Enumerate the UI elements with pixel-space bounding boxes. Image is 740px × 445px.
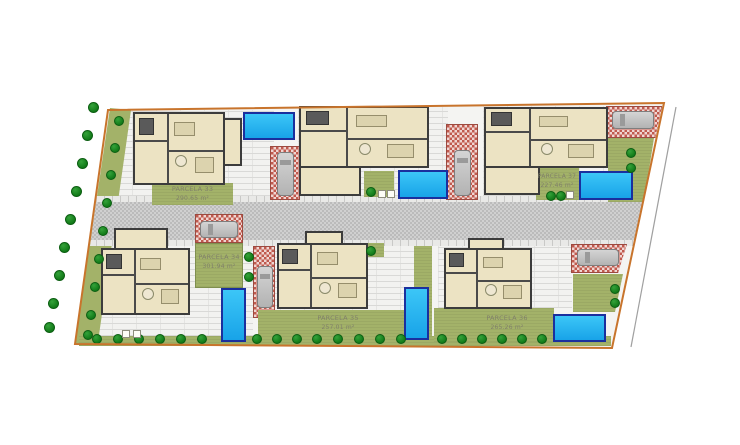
tree [88, 102, 99, 113]
interior-wall [529, 139, 606, 141]
table [319, 282, 331, 294]
interior-wall [103, 274, 134, 276]
tree [477, 334, 487, 344]
tree [98, 226, 108, 236]
tree [102, 198, 112, 208]
label-parcela-36: PARCELA 36 265.26 m² [462, 314, 552, 332]
parcel-area: 290.65 m² [150, 194, 235, 203]
interior-wall [167, 150, 223, 152]
house-parcela-34 [101, 248, 190, 315]
pool-parcela-36 [553, 314, 606, 342]
tree [354, 334, 364, 344]
furniture [161, 289, 180, 304]
furniture [140, 258, 160, 271]
tree [457, 334, 467, 344]
bathroom-block [449, 253, 464, 267]
tree [312, 334, 322, 344]
house-parcela-36 [444, 248, 532, 309]
tree [106, 170, 116, 180]
interior-wall [486, 131, 529, 133]
parcel-name: PARCELA 36 [462, 314, 552, 323]
table [485, 284, 497, 296]
label-parcela-37: PARCELA 37 227.46 m² [536, 172, 578, 190]
tree [244, 252, 254, 262]
furniture [317, 252, 338, 264]
tree [44, 322, 55, 333]
tree [197, 334, 207, 344]
interior-wall [134, 283, 188, 285]
utility-box [378, 190, 386, 198]
car-parcela-37 [612, 111, 654, 129]
furniture [356, 115, 386, 127]
furniture [174, 122, 195, 136]
tree [546, 191, 556, 201]
tree [437, 334, 447, 344]
road-surface [88, 202, 646, 240]
tree [77, 158, 88, 169]
tree [54, 270, 65, 281]
tree [396, 334, 406, 344]
tree [497, 334, 507, 344]
tree [92, 334, 102, 344]
tree [610, 284, 620, 294]
pool-top-middle [398, 170, 448, 199]
tree [71, 186, 82, 197]
pool-parcela-35 [404, 287, 429, 340]
tree [556, 191, 566, 201]
tree [59, 242, 70, 253]
interior-wall [134, 250, 136, 313]
tree [610, 298, 620, 308]
tree [626, 148, 636, 158]
furniture [338, 283, 357, 298]
tree [244, 272, 254, 282]
interior-wall [529, 109, 531, 166]
interior-wall [476, 250, 478, 307]
furniture [483, 257, 503, 268]
bathroom-block [491, 112, 513, 126]
furniture [503, 285, 521, 299]
tree [48, 298, 59, 309]
tree [366, 187, 376, 197]
furniture [195, 157, 214, 174]
label-parcela-35: PARCELA 35 257.01 m² [288, 314, 388, 332]
utility-box [387, 190, 395, 198]
tree [176, 334, 186, 344]
bathroom-block [139, 118, 155, 135]
parcel-name: PARCELA 35 [288, 314, 388, 323]
interior-wall [446, 272, 476, 274]
tree [375, 334, 385, 344]
car-parcela-33 [277, 152, 294, 196]
parcel-name: PARCELA 34 [194, 253, 244, 262]
parcel-name: PARCELA 33 [150, 185, 235, 194]
bathroom-block [306, 111, 329, 125]
car-parcela-35 [257, 266, 273, 308]
bathroom-block [106, 254, 121, 269]
table [541, 143, 553, 155]
tree [366, 246, 376, 256]
label-parcela-34: PARCELA 34 301.94 m² [194, 253, 244, 271]
furniture [387, 144, 415, 158]
utility-box [566, 191, 574, 199]
interior-wall [279, 269, 310, 271]
tree [86, 310, 96, 320]
pool-parcela-33 [243, 112, 295, 140]
tree [333, 334, 343, 344]
pool-parcela-34 [221, 288, 246, 342]
interior-wall [310, 277, 366, 279]
table [359, 143, 371, 155]
parcel-area: 301.94 m² [194, 262, 244, 271]
tree [155, 334, 165, 344]
tree [65, 214, 76, 225]
house-parcela-37 [484, 107, 608, 168]
interior-wall [476, 280, 530, 282]
interior-wall [167, 114, 169, 183]
pool-parcela-37 [579, 171, 633, 200]
parcel-area: 257.01 m² [288, 323, 388, 332]
furniture [568, 144, 594, 158]
tree [292, 334, 302, 344]
parcel-area: 227.46 m² [536, 181, 578, 190]
car-parcela-34 [200, 221, 238, 238]
car-top-middle [454, 150, 471, 196]
site-plan: PARCELA 33 290.65 m² PARCELA 34 301.94 m… [0, 0, 740, 445]
house-parcela-35 [277, 243, 368, 309]
interior-wall [135, 140, 167, 142]
furniture [539, 116, 568, 127]
house-top-middle [299, 106, 429, 168]
interior-wall [301, 130, 346, 132]
tree [626, 163, 636, 173]
utility-box [133, 330, 141, 338]
tree [110, 143, 120, 153]
tree [252, 334, 262, 344]
bathroom-block [282, 249, 298, 264]
label-parcela-33: PARCELA 33 290.65 m² [150, 185, 235, 203]
tree [82, 130, 93, 141]
tree [517, 334, 527, 344]
house-parcela-33 [133, 112, 225, 185]
parcel-name: PARCELA 37 [536, 172, 578, 181]
tree [94, 254, 104, 264]
tree [537, 334, 547, 344]
tree [90, 282, 100, 292]
table [175, 155, 187, 167]
tree [114, 116, 124, 126]
interior-wall [346, 138, 427, 140]
parcel-area: 265.26 m² [462, 323, 552, 332]
tree [272, 334, 282, 344]
utility-box [122, 330, 130, 338]
interior-wall [310, 245, 312, 307]
interior-wall [346, 108, 348, 166]
car-parcela-36 [577, 249, 619, 266]
table [142, 288, 154, 300]
